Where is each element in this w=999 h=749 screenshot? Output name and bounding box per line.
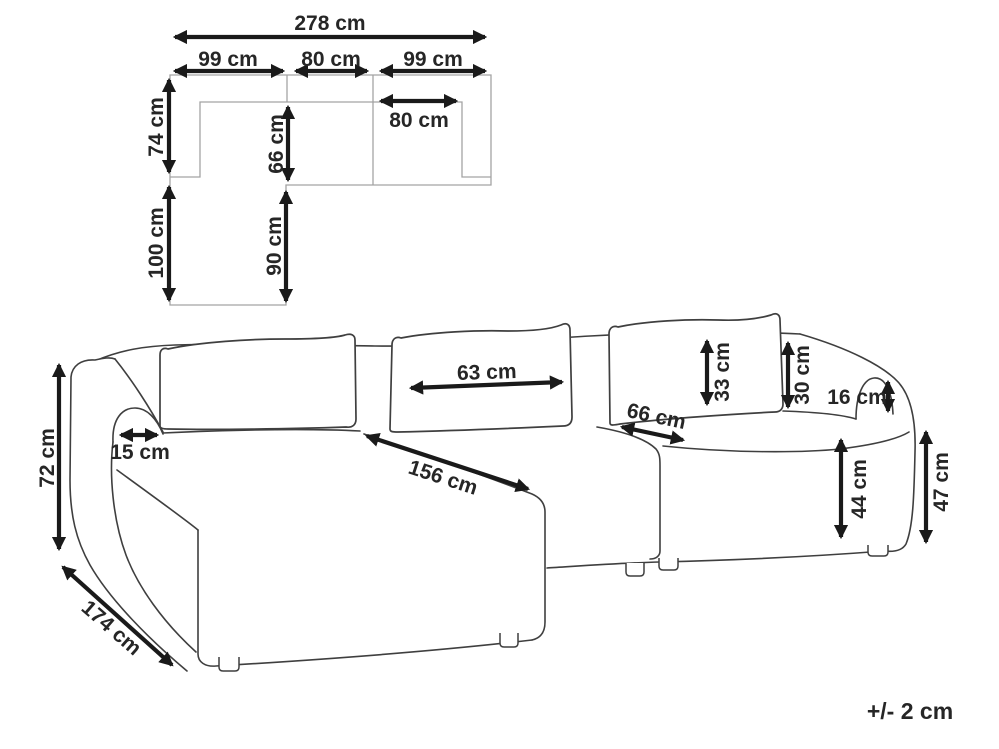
- cushion-width-label: 63 cm: [457, 360, 517, 385]
- sofa-leg-middle-right: [659, 558, 678, 570]
- sofa-top-view: 278 cm 99 cm 80 cm 99 cm 74 cm 80 cm 66 …: [145, 12, 491, 305]
- sofa-leg-chaise-left: [219, 657, 239, 671]
- backrest-height-label: 30 cm: [791, 345, 814, 405]
- chaise-body: [117, 430, 545, 667]
- armrest-width-label: 15 cm: [110, 441, 170, 464]
- back-pillow-left: [160, 334, 356, 429]
- left-section-width-label: 99 cm: [198, 48, 258, 71]
- sofa-dimension-diagram: 278 cm 99 cm 80 cm 99 cm 74 cm 80 cm 66 …: [0, 0, 999, 749]
- sofa-leg-chaise-right: [500, 633, 518, 647]
- sofa-leg-right-armrest: [868, 545, 888, 556]
- middle-section-width-label: 80 cm: [301, 48, 361, 71]
- armrest-above-seat-label: 16 cm: [827, 386, 887, 409]
- seat-height-label: 44 cm: [848, 459, 871, 519]
- sofa-leg-middle-left: [626, 563, 644, 576]
- total-height-label: 72 cm: [36, 428, 59, 488]
- chaise-depth-label: 90 cm: [263, 216, 286, 276]
- diagram-canvas: 278 cm 99 cm 80 cm 99 cm 74 cm 80 cm 66 …: [0, 0, 999, 749]
- sofa-front-view: 72 cm 15 cm 174 cm 156 cm 63 cm 66 cm 33…: [36, 314, 953, 671]
- total-width-label: 278 cm: [294, 12, 365, 35]
- total-depth-label: 74 cm: [145, 97, 168, 157]
- tolerance-note: +/- 2 cm: [867, 698, 953, 724]
- right-seat-width-label: 80 cm: [389, 109, 449, 132]
- right-section-width-label: 99 cm: [403, 48, 463, 71]
- cushion-height-label: 33 cm: [711, 342, 734, 402]
- seat-depth-label: 66 cm: [265, 114, 288, 174]
- armrest-height-label: 47 cm: [930, 452, 953, 512]
- chaise-extension-label: 100 cm: [145, 207, 168, 278]
